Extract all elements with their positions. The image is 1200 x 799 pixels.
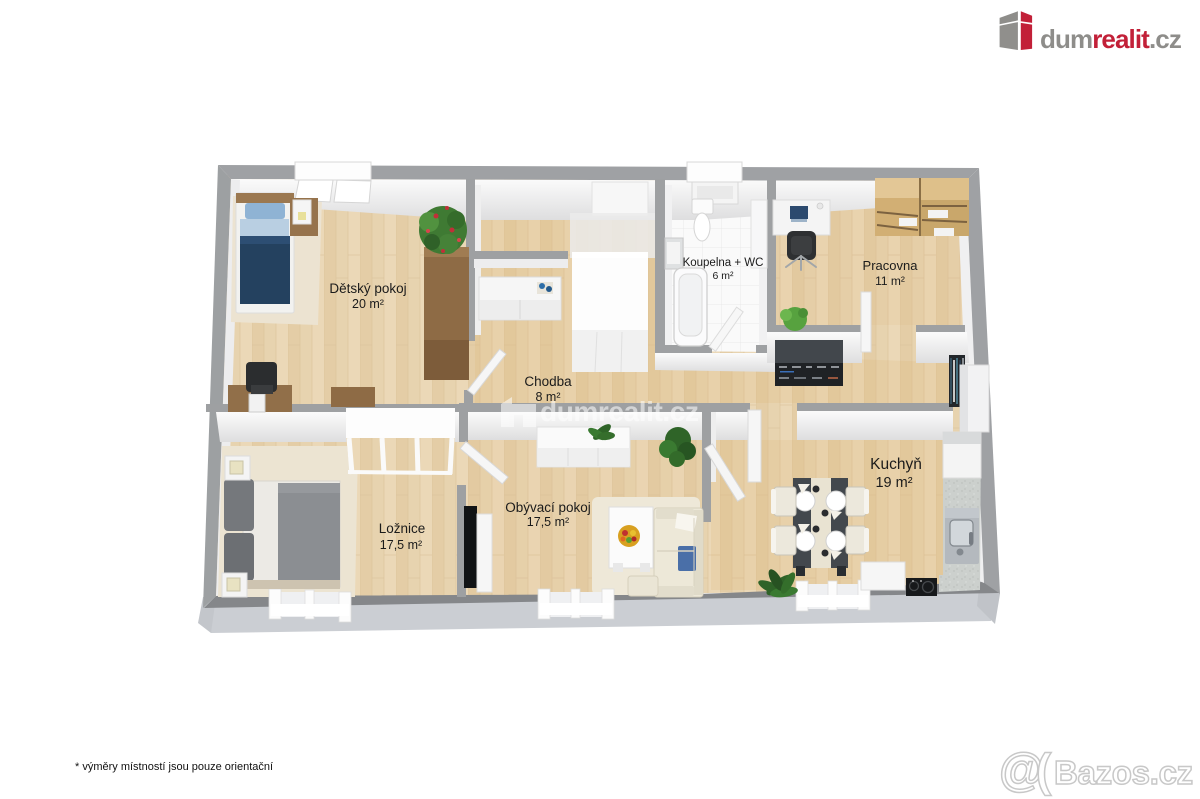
svg-text:20 m²: 20 m² — [352, 297, 384, 311]
svg-text:11 m²: 11 m² — [875, 274, 905, 288]
svg-text:Kuchyň: Kuchyň — [870, 456, 922, 473]
svg-text:Obývací pokoj: Obývací pokoj — [505, 500, 591, 515]
svg-text:19 m²: 19 m² — [875, 475, 912, 491]
svg-text:17,5 m²: 17,5 m² — [380, 538, 422, 552]
svg-text:Bazos.cz: Bazos.cz — [1054, 754, 1193, 791]
svg-text:6 m²: 6 m² — [713, 270, 735, 282]
svg-text:Koupelna + WC: Koupelna + WC — [683, 257, 764, 269]
svg-text:dumrealit.cz: dumrealit.cz — [540, 396, 699, 427]
svg-text:Ložnice: Ložnice — [379, 521, 426, 536]
svg-text:Pracovna: Pracovna — [863, 258, 919, 273]
svg-text:Chodba: Chodba — [524, 374, 572, 389]
svg-text:(: ( — [1036, 744, 1052, 796]
svg-text:dumrealit.cz: dumrealit.cz — [1040, 24, 1182, 54]
svg-text:17,5 m²: 17,5 m² — [527, 515, 569, 529]
svg-text:* výměry místností jsou pouze: * výměry místností jsou pouze orientační — [75, 761, 273, 773]
svg-text:Dětský pokoj: Dětský pokoj — [329, 281, 406, 296]
